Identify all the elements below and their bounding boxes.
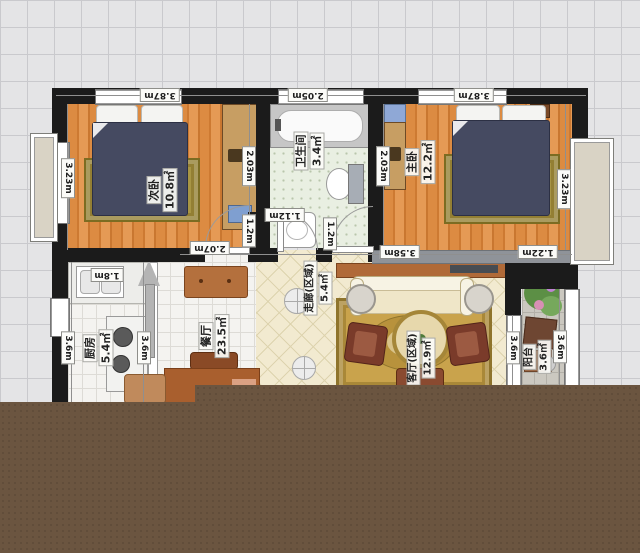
- room-name: 阳台: [523, 344, 537, 370]
- label-dining: 餐厅 23.5㎡: [199, 314, 230, 358]
- wall-balcony-left: [505, 289, 521, 315]
- flower-icon: [534, 300, 544, 310]
- room-area: 3.4㎡: [310, 133, 325, 170]
- dim-bedroom2-top: 3.87m: [140, 88, 180, 102]
- dim-bathroom-top: 2.05m: [288, 88, 328, 102]
- dim-kitchen-left: 3.6m: [61, 331, 75, 364]
- burner-icon: [112, 355, 130, 373]
- armchair: [445, 321, 490, 366]
- dim-master-right: 3.23m: [557, 169, 571, 209]
- entrance-arrow-icon: [138, 260, 160, 286]
- room-name: 客厅(区域): [407, 330, 421, 385]
- dim-bedroom2-door: 1.2m: [242, 214, 256, 247]
- dim-bedroom2-right: 2.03m: [242, 146, 256, 186]
- room-area: 12.9㎡: [422, 338, 436, 379]
- dim-master-left: 2.03m: [376, 146, 390, 186]
- dim-master-bottom: 3.58m: [380, 245, 420, 259]
- room-name: 主卧: [405, 148, 420, 176]
- door-master: [332, 246, 374, 253]
- room-area: 5.4㎡: [319, 271, 333, 305]
- dim-master-door: 1.2m: [323, 217, 337, 250]
- dim-bedroom2-bottom: 2.07m: [190, 241, 230, 255]
- sideboard: [184, 266, 248, 298]
- blanket-fold: [453, 121, 468, 136]
- bed-master-bedroom: [452, 120, 550, 216]
- wall-right: [572, 104, 588, 138]
- room-area: 5.4㎡: [99, 330, 114, 367]
- dim-master-top: 3.87m: [454, 88, 494, 102]
- label-corridor: 走廊(区域) 5.4㎡: [304, 260, 333, 315]
- armchair-seat: [352, 330, 377, 357]
- dining-chair: [124, 374, 166, 404]
- dresser-master: [384, 104, 406, 124]
- brown-overlay: [0, 402, 640, 553]
- dim-master-bottom-right: 1.22m: [518, 245, 558, 259]
- burner-icon: [113, 327, 133, 347]
- faucet-icon: [275, 119, 281, 131]
- wardrobe-items: [389, 147, 401, 161]
- bay-window-right: [570, 138, 614, 265]
- side-table: [346, 284, 376, 314]
- room-name: 卫生间: [294, 132, 309, 171]
- side-table: [464, 284, 494, 314]
- label-kitchen: 厨房 5.4㎡: [83, 330, 114, 367]
- wall-mid-horizontal: [68, 248, 205, 262]
- room-name: 次卧: [147, 176, 162, 204]
- bay-window-left: [30, 133, 58, 242]
- dim-bedroom2-left: 3.23m: [61, 158, 75, 198]
- room-area: 3.6㎡: [538, 340, 552, 374]
- blanket-fold: [93, 123, 108, 138]
- label-balcony: 阳台 3.6㎡: [523, 340, 552, 374]
- room-area: 23.5㎡: [215, 314, 230, 358]
- room-area: 12.2㎡: [421, 140, 436, 184]
- dim-balcony-left: 3.6m: [506, 331, 520, 364]
- wall-mid-horizontal: [248, 248, 278, 262]
- toilet-tank: [348, 164, 364, 204]
- handle-icon: [227, 279, 231, 283]
- brown-overlay: [195, 385, 640, 403]
- room-name: 走廊(区域): [304, 260, 318, 315]
- label-living-room: 客厅(区域) 12.9㎡: [407, 330, 436, 385]
- label-master-bedroom: 主卧 12.2㎡: [405, 140, 436, 184]
- floor-plan-canvas: 3.87m 2.05m 3.87m 3.23m 3.23m 2.03m 2.03…: [0, 0, 640, 553]
- dim-balcony-right: 3.6m: [553, 330, 567, 363]
- armchair-seat: [454, 331, 479, 358]
- dim-kitchen-right: 3.6m: [137, 331, 151, 364]
- armchair: [343, 321, 388, 366]
- dim-bathroom-door: 1.12m: [265, 208, 305, 222]
- room-area: 10.8㎡: [163, 168, 178, 212]
- label-bathroom: 卫生间 3.4㎡: [294, 132, 325, 171]
- handle-icon: [199, 279, 203, 283]
- dim-kitchen-top: 1.8m: [90, 268, 123, 282]
- wall-balcony-top: [505, 263, 578, 289]
- tv: [450, 265, 498, 273]
- room-name: 餐厅: [199, 322, 214, 350]
- room-name: 厨房: [83, 334, 98, 362]
- label-secondary-bedroom: 次卧 10.8㎡: [147, 168, 178, 212]
- ceiling-light-icon: [292, 356, 316, 380]
- dimension-line: [180, 254, 572, 255]
